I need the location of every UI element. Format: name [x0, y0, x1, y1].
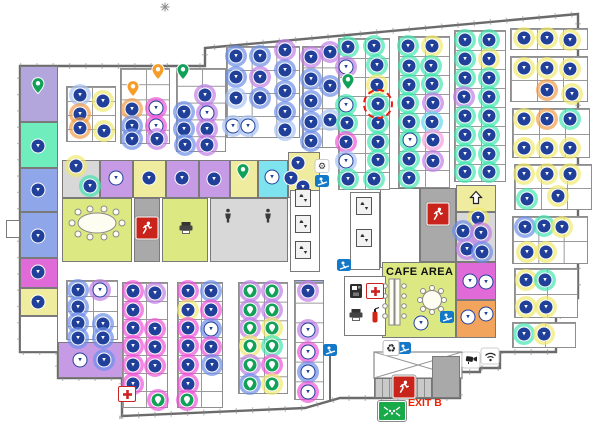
ramp-icon [440, 311, 454, 323]
desk-marker[interactable]: ▾ [520, 192, 535, 207]
desk-marker[interactable]: ▾ [181, 284, 196, 299]
desk-marker[interactable]: ▾ [229, 70, 244, 85]
desk-marker[interactable]: ▾ [83, 179, 98, 194]
elevator-icon [295, 189, 311, 207]
desk-marker[interactable]: ▾ [73, 107, 88, 122]
orange-map-pin[interactable] [126, 80, 140, 103]
desk-marker[interactable]: ▾ [301, 365, 316, 380]
desk-marker[interactable]: ▾ [96, 331, 111, 346]
desk-marker[interactable]: ▾ [537, 219, 552, 234]
desk-marker[interactable]: ▾ [456, 224, 471, 239]
desk-marker[interactable]: ▾ [517, 327, 532, 342]
desk-marker[interactable]: ▾ [425, 115, 440, 130]
pin-desk-marker[interactable] [180, 393, 195, 408]
desk-marker[interactable]: ▾ [71, 331, 86, 346]
desk-marker[interactable]: ▾ [402, 152, 417, 167]
desk-marker[interactable]: ▾ [278, 43, 293, 58]
desk-marker[interactable]: ▾ [367, 172, 382, 187]
room-core-room [380, 188, 420, 268]
desk-marker[interactable]: ▾ [402, 59, 417, 74]
desk-marker[interactable]: ▾ [482, 128, 497, 143]
desk-marker[interactable]: ▾ [304, 94, 319, 109]
desk-marker[interactable]: ▾ [482, 147, 497, 162]
desk-marker[interactable]: ▾ [371, 153, 386, 168]
desk-marker[interactable]: ▾ [71, 316, 86, 331]
desk-marker[interactable]: ▾ [341, 40, 356, 55]
desk-marker[interactable]: ▾ [96, 317, 111, 332]
desk-marker[interactable]: ▾ [204, 340, 219, 355]
desk-marker[interactable]: ▾ [414, 316, 429, 331]
exit-icon [136, 217, 159, 240]
desk-marker[interactable]: ▾ [563, 167, 578, 182]
desk-marker[interactable]: ▾ [198, 88, 213, 103]
desk-marker[interactable]: ▾ [482, 71, 497, 86]
room-restrooms [210, 198, 288, 262]
elevator-icon [356, 229, 372, 247]
green-map-pin[interactable] [341, 73, 355, 96]
pin-desk-marker[interactable] [243, 303, 258, 318]
desk-marker[interactable]: ▾ [540, 83, 555, 98]
desk-marker[interactable]: ▾ [424, 59, 439, 74]
desk-marker[interactable]: ▾ [563, 112, 578, 127]
desk-marker[interactable]: ▾ [482, 109, 497, 124]
pin-desk-marker[interactable] [243, 321, 258, 336]
desk-marker[interactable]: ▾ [370, 58, 385, 73]
desk-marker[interactable]: ▾ [458, 71, 473, 86]
desk-marker[interactable]: ▾ [126, 284, 141, 299]
pin-desk-marker[interactable] [265, 284, 280, 299]
printer-icon [179, 222, 194, 235]
room-office-left-7 [20, 316, 58, 352]
pin-desk-marker[interactable] [243, 339, 258, 354]
desk-marker[interactable]: ▾ [555, 220, 570, 235]
desk-marker[interactable]: ▾ [31, 295, 46, 310]
desk-marker[interactable]: ▾ [73, 121, 88, 136]
desk-marker[interactable]: ▾ [109, 171, 124, 186]
elevator-icon [356, 197, 372, 215]
desk-marker[interactable]: ▾ [31, 229, 46, 244]
desk-marker[interactable]: ▾ [458, 165, 473, 180]
desk-marker[interactable]: ▾ [148, 286, 163, 301]
person-icon [264, 209, 272, 224]
desk-marker[interactable]: ▾ [517, 61, 532, 76]
pin-desk-marker[interactable] [265, 303, 280, 318]
desk-marker[interactable]: ▾ [181, 377, 196, 392]
desk-marker[interactable]: ▾ [301, 345, 316, 360]
desk-marker[interactable]: ▾ [425, 39, 440, 54]
person-icon [224, 209, 232, 224]
desk-marker[interactable]: ▾ [125, 132, 140, 147]
desk-marker[interactable]: ▾ [150, 132, 165, 147]
ramp-icon [323, 344, 337, 356]
extinguisher-icon [369, 307, 381, 324]
desk-marker[interactable]: ▾ [551, 189, 566, 204]
desk-marker[interactable]: ▾ [426, 96, 441, 111]
desk-marker[interactable]: ▾ [93, 283, 108, 298]
desk-marker[interactable]: ▾ [204, 284, 219, 299]
green-map-pin[interactable] [236, 163, 250, 186]
firstaid-icon [366, 283, 384, 299]
desk-marker[interactable]: ▾ [278, 105, 293, 120]
desk-marker[interactable]: ▾ [241, 119, 256, 134]
desk-marker[interactable]: ▾ [301, 385, 316, 400]
room-meeting-room[interactable] [62, 198, 132, 262]
desk-marker[interactable]: ▾ [426, 133, 441, 148]
desk-marker[interactable]: ▾ [458, 147, 473, 162]
desk-marker[interactable]: ▾ [148, 359, 163, 374]
desk-marker[interactable]: ▾ [563, 33, 578, 48]
desk-marker[interactable]: ▾ [126, 321, 141, 336]
desk-marker[interactable]: ▾ [540, 141, 555, 156]
desk-marker[interactable]: ▾ [126, 358, 141, 373]
desk-marker[interactable]: ▾ [204, 303, 219, 318]
desk-marker[interactable]: ▾ [204, 322, 219, 337]
desk-marker[interactable]: ▾ [475, 245, 490, 260]
desk-marker[interactable]: ▾ [517, 141, 532, 156]
desk-marker[interactable]: ▾ [301, 323, 316, 338]
desk-marker[interactable]: ▾ [458, 33, 473, 48]
exit-icon [427, 203, 450, 226]
desk-marker[interactable]: ▾ [402, 171, 417, 186]
exit-icon [393, 376, 416, 399]
desk-marker[interactable]: ▾ [401, 96, 416, 111]
desk-marker[interactable]: ▾ [200, 122, 215, 137]
desk-marker[interactable]: ▾ [278, 123, 293, 138]
desk-marker[interactable]: ▾ [323, 45, 338, 60]
fan-icon [161, 3, 170, 12]
desk-marker[interactable]: ▾ [253, 70, 268, 85]
desk-marker[interactable]: ▾ [517, 31, 532, 46]
desk-marker[interactable]: ▾ [142, 171, 157, 186]
desk-marker[interactable]: ▾ [149, 101, 164, 116]
desk-marker[interactable]: ▾ [207, 172, 222, 187]
green-map-pin[interactable] [176, 63, 190, 86]
room-wall-nook [6, 220, 20, 238]
green-map-pin[interactable] [31, 77, 45, 100]
coffee-icon [350, 284, 363, 299]
pin-desk-marker[interactable] [151, 393, 166, 408]
desk-marker[interactable]: ▾ [69, 159, 84, 174]
desk-marker[interactable]: ▾ [181, 321, 196, 336]
desk-marker[interactable]: ▾ [200, 106, 215, 121]
desk-marker[interactable]: ▾ [178, 138, 193, 153]
desk-marker[interactable]: ▾ [458, 128, 473, 143]
elevator-icon [295, 241, 311, 259]
camera-icon [462, 352, 481, 369]
desk-marker[interactable]: ▾ [563, 62, 578, 77]
pin-desk-marker[interactable] [265, 339, 280, 354]
pin-desk-marker[interactable] [265, 377, 280, 392]
pin-desk-marker[interactable] [265, 358, 280, 373]
desk-marker[interactable]: ▾ [565, 87, 580, 102]
desk-marker[interactable]: ▾ [519, 273, 534, 288]
desk-marker[interactable]: ▾ [517, 167, 532, 182]
desk-marker[interactable]: ▾ [226, 119, 241, 134]
desk-marker[interactable]: ▾ [457, 90, 472, 105]
desk-marker[interactable]: ▾ [278, 63, 293, 78]
desk-marker[interactable]: ▾ [520, 245, 535, 260]
desk-marker[interactable]: ▾ [73, 88, 88, 103]
desk-marker[interactable]: ▾ [301, 284, 316, 299]
uparrow-icon [469, 191, 484, 206]
desk-marker[interactable]: ▾ [537, 327, 552, 342]
desk-marker[interactable]: ▾ [200, 138, 215, 153]
desk-marker[interactable]: ▾ [538, 273, 553, 288]
desk-marker[interactable]: ▾ [471, 211, 486, 226]
desk-marker[interactable]: ▾ [482, 90, 497, 105]
desk-marker[interactable]: ▾ [73, 353, 88, 368]
desk-marker[interactable]: ▾ [181, 358, 196, 373]
desk-marker[interactable]: ▾ [539, 245, 554, 260]
cafe-area-label: CAFE AREA [386, 266, 453, 278]
desk-marker[interactable]: ▾ [482, 165, 497, 180]
desk-marker[interactable]: ▾ [460, 242, 475, 257]
desk-grid [294, 282, 324, 400]
desk-marker[interactable]: ▾ [181, 339, 196, 354]
ramp-icon [315, 175, 329, 187]
desk-marker[interactable]: ▾ [339, 135, 354, 150]
desk-marker[interactable]: ▾ [540, 112, 555, 127]
desk-marker[interactable]: ▾ [175, 171, 190, 186]
pin-desk-marker[interactable] [243, 358, 258, 373]
desk-marker[interactable]: ▾ [401, 39, 416, 54]
desk-marker[interactable]: ▾ [304, 134, 319, 149]
desk-marker[interactable]: ▾ [474, 226, 489, 241]
desk-marker[interactable]: ▾ [482, 52, 497, 67]
desk-marker[interactable]: ▾ [71, 283, 86, 298]
desk-marker[interactable]: ▾ [323, 113, 338, 128]
desk-marker[interactable]: ▾ [425, 77, 440, 92]
gear-icon: ⚙ [315, 159, 330, 173]
floor-plan: CAFE AREA EXIT B ▾▾▾▾▾▾▾▾▾▾▾▾▾▾▾▾▾▾▾▾▾▾▾… [0, 0, 600, 434]
desk-marker[interactable]: ▾ [340, 116, 355, 131]
desk-marker[interactable]: ▾ [177, 122, 192, 137]
desk-marker[interactable]: ▾ [482, 33, 497, 48]
pin-desk-marker[interactable] [265, 321, 280, 336]
pin-desk-marker[interactable] [243, 377, 258, 392]
recycle-icon: ♻ [383, 340, 400, 356]
desk-marker[interactable]: ▾ [71, 300, 86, 315]
elevator-icon [295, 215, 311, 233]
desk-marker[interactable]: ▾ [31, 139, 46, 154]
desk-marker[interactable]: ▾ [402, 78, 417, 93]
desk-marker[interactable]: ▾ [148, 322, 163, 337]
desk-marker[interactable]: ▾ [253, 91, 268, 106]
desk-marker[interactable]: ▾ [563, 141, 578, 156]
desk-marker[interactable]: ▾ [540, 61, 555, 76]
desk-marker[interactable]: ▾ [341, 172, 356, 187]
desk-marker[interactable]: ▾ [517, 112, 532, 127]
orange-map-pin[interactable] [151, 63, 165, 86]
printer-icon [349, 309, 364, 322]
desk-marker[interactable]: ▾ [265, 170, 280, 185]
desk-marker[interactable]: ▾ [458, 109, 473, 124]
desk-marker[interactable]: ▾ [304, 72, 319, 87]
desk-marker[interactable]: ▾ [339, 98, 354, 113]
desk-marker[interactable]: ▾ [426, 154, 441, 169]
wifi-icon [481, 348, 500, 365]
desk-marker[interactable]: ▾ [367, 39, 382, 54]
desk-marker[interactable]: ▾ [304, 115, 319, 130]
desk-marker[interactable]: ▾ [539, 300, 554, 315]
desk-marker[interactable]: ▾ [304, 50, 319, 65]
desk-marker[interactable]: ▾ [371, 135, 386, 150]
desk-marker[interactable]: ▾ [519, 300, 534, 315]
desk-marker[interactable]: ▾ [403, 133, 418, 148]
desk-marker[interactable]: ▾ [278, 84, 293, 99]
desk-marker[interactable]: ▾ [253, 49, 268, 64]
desk-marker[interactable]: ▾ [126, 339, 141, 354]
desk-marker[interactable]: ▾ [148, 340, 163, 355]
room-stair-block [432, 356, 460, 398]
desk-marker[interactable]: ▾ [31, 265, 46, 280]
highlighted-desk-ring [363, 89, 393, 119]
desk-marker[interactable]: ▾ [458, 52, 473, 67]
desk-marker[interactable]: ▾ [540, 167, 555, 182]
desk-marker[interactable]: ▾ [518, 220, 533, 235]
desk-marker[interactable]: ▾ [97, 353, 112, 368]
ramp-icon [337, 259, 351, 271]
desk-marker[interactable]: ▾ [126, 303, 141, 318]
desk-marker[interactable]: ▾ [177, 105, 192, 120]
desk-marker[interactable]: ▾ [97, 124, 112, 139]
pin-desk-marker[interactable] [243, 284, 258, 299]
desk-marker[interactable]: ▾ [323, 79, 338, 94]
desk-marker[interactable]: ▾ [181, 303, 196, 318]
desk-marker[interactable]: ▾ [229, 49, 244, 64]
desk-marker[interactable]: ▾ [229, 91, 244, 106]
desk-marker[interactable]: ▾ [461, 310, 476, 325]
desk-marker[interactable]: ▾ [479, 275, 494, 290]
desk-marker[interactable]: ▾ [31, 183, 46, 198]
desk-marker[interactable]: ▾ [125, 102, 140, 117]
desk-marker[interactable]: ▾ [96, 94, 111, 109]
firstaid-icon [118, 386, 136, 402]
desk-marker[interactable]: ▾ [291, 156, 306, 171]
desk-marker[interactable]: ▾ [205, 358, 220, 373]
assembly-icon [378, 401, 406, 421]
desk-marker[interactable]: ▾ [463, 274, 478, 289]
exit-b-label: EXIT B [408, 397, 442, 409]
desk-marker[interactable]: ▾ [402, 115, 417, 130]
desk-marker[interactable]: ▾ [339, 154, 354, 169]
desk-marker[interactable]: ▾ [540, 31, 555, 46]
desk-marker[interactable]: ▾ [479, 307, 494, 322]
